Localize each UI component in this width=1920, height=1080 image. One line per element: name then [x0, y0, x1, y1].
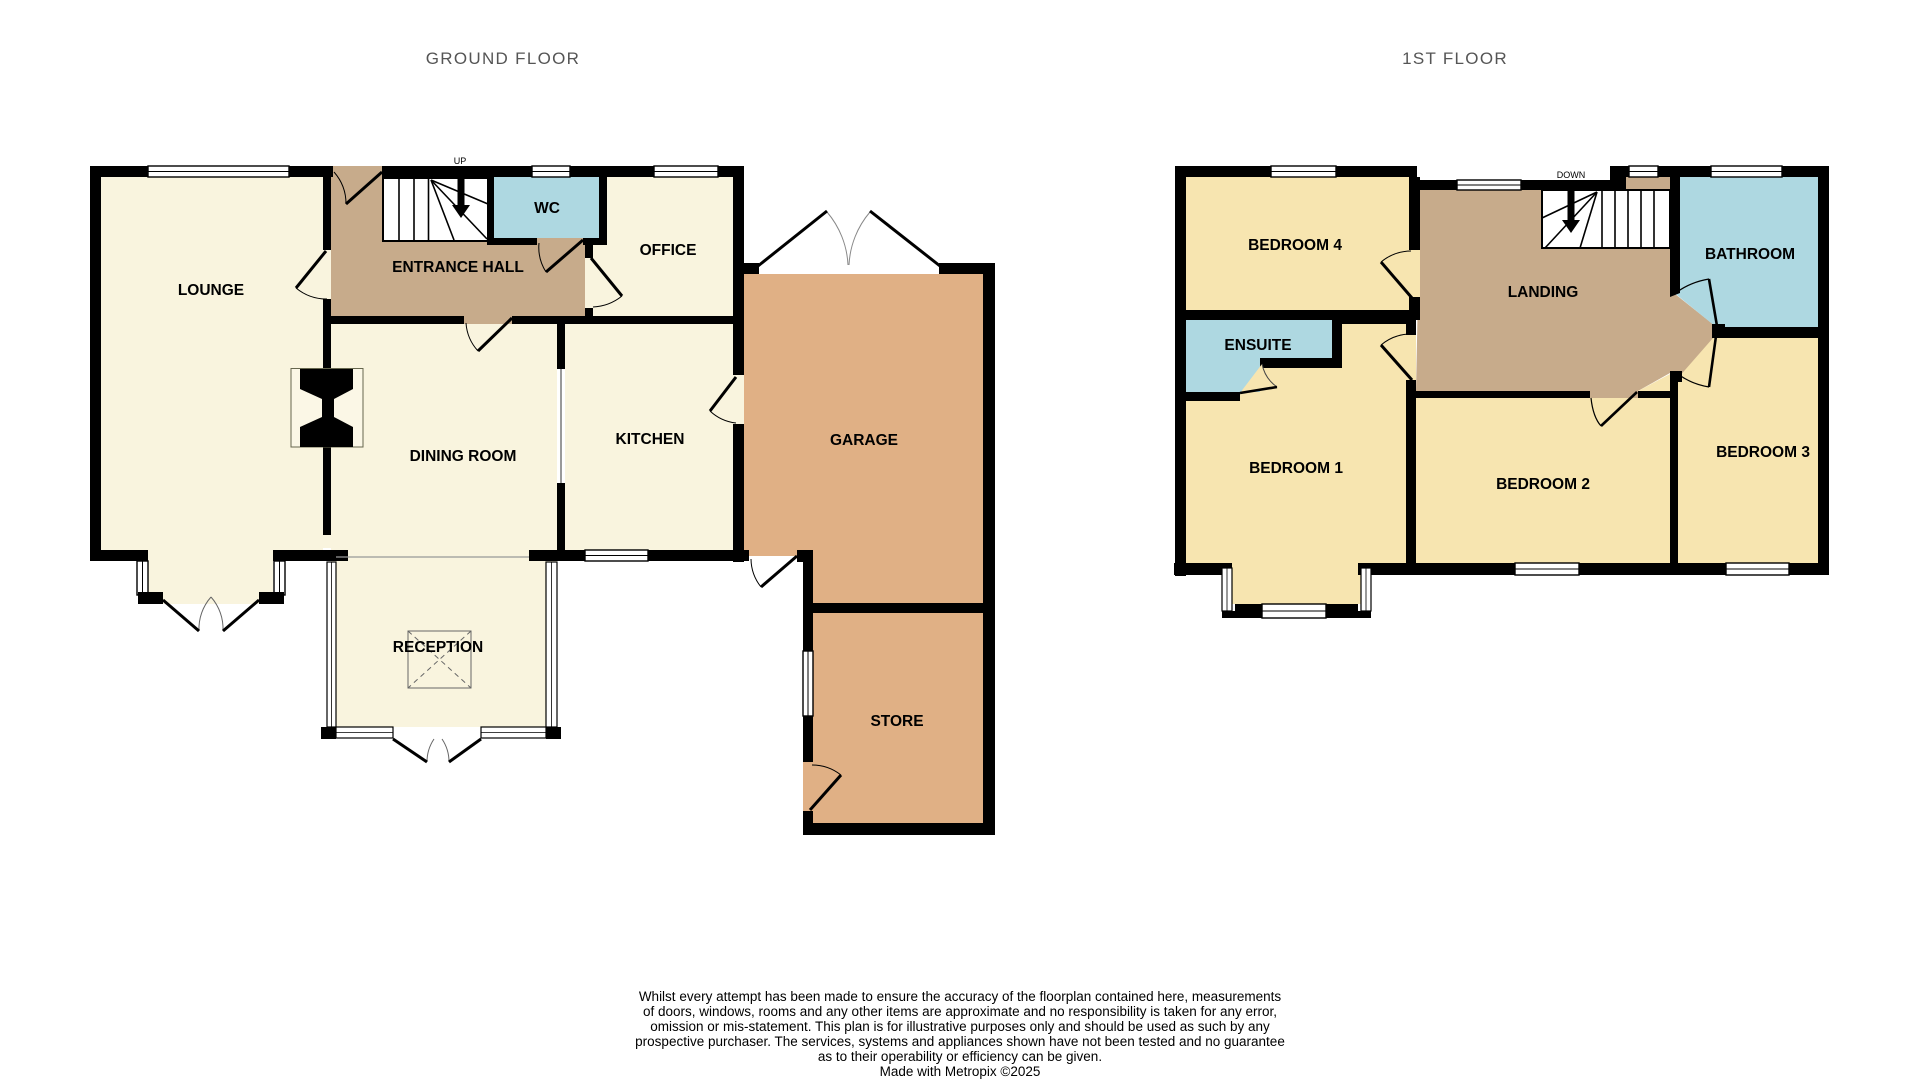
svg-text:KITCHEN: KITCHEN: [616, 431, 685, 448]
svg-text:GARAGE: GARAGE: [830, 432, 898, 449]
svg-text:of doors, windows, rooms and a: of doors, windows, rooms and any other i…: [643, 1004, 1277, 1019]
svg-text:STORE: STORE: [870, 713, 923, 730]
svg-text:OFFICE: OFFICE: [640, 242, 697, 259]
svg-text:BEDROOM 1: BEDROOM 1: [1249, 460, 1343, 477]
svg-text:LANDING: LANDING: [1508, 284, 1579, 301]
svg-text:LOUNGE: LOUNGE: [178, 282, 244, 299]
svg-text:BATHROOM: BATHROOM: [1705, 246, 1795, 263]
svg-text:UP: UP: [454, 156, 467, 166]
svg-text:ENTRANCE HALL: ENTRANCE HALL: [392, 259, 524, 276]
svg-text:BEDROOM 3: BEDROOM 3: [1716, 444, 1810, 461]
svg-text:RECEPTION: RECEPTION: [393, 639, 483, 656]
svg-text:1ST FLOOR: 1ST FLOOR: [1402, 49, 1508, 68]
svg-text:DOWN: DOWN: [1557, 170, 1586, 180]
svg-text:Whilst every attempt has been: Whilst every attempt has been made to en…: [639, 989, 1282, 1004]
svg-text:omission or mis-statement. Thi: omission or mis-statement. This plan is …: [650, 1019, 1270, 1034]
svg-text:BEDROOM 4: BEDROOM 4: [1248, 237, 1342, 254]
svg-text:WC: WC: [534, 200, 560, 217]
svg-text:DINING ROOM: DINING ROOM: [410, 448, 517, 465]
svg-text:prospective purchaser. The ser: prospective purchaser. The services, sys…: [635, 1034, 1285, 1049]
svg-text:as to their operability or eff: as to their operability or efficiency ca…: [818, 1049, 1102, 1064]
svg-text:ENSUITE: ENSUITE: [1224, 337, 1291, 354]
svg-text:GROUND FLOOR: GROUND FLOOR: [426, 49, 580, 68]
svg-text:BEDROOM 2: BEDROOM 2: [1496, 476, 1590, 493]
svg-text:Made with Metropix ©2025: Made with Metropix ©2025: [880, 1064, 1041, 1079]
